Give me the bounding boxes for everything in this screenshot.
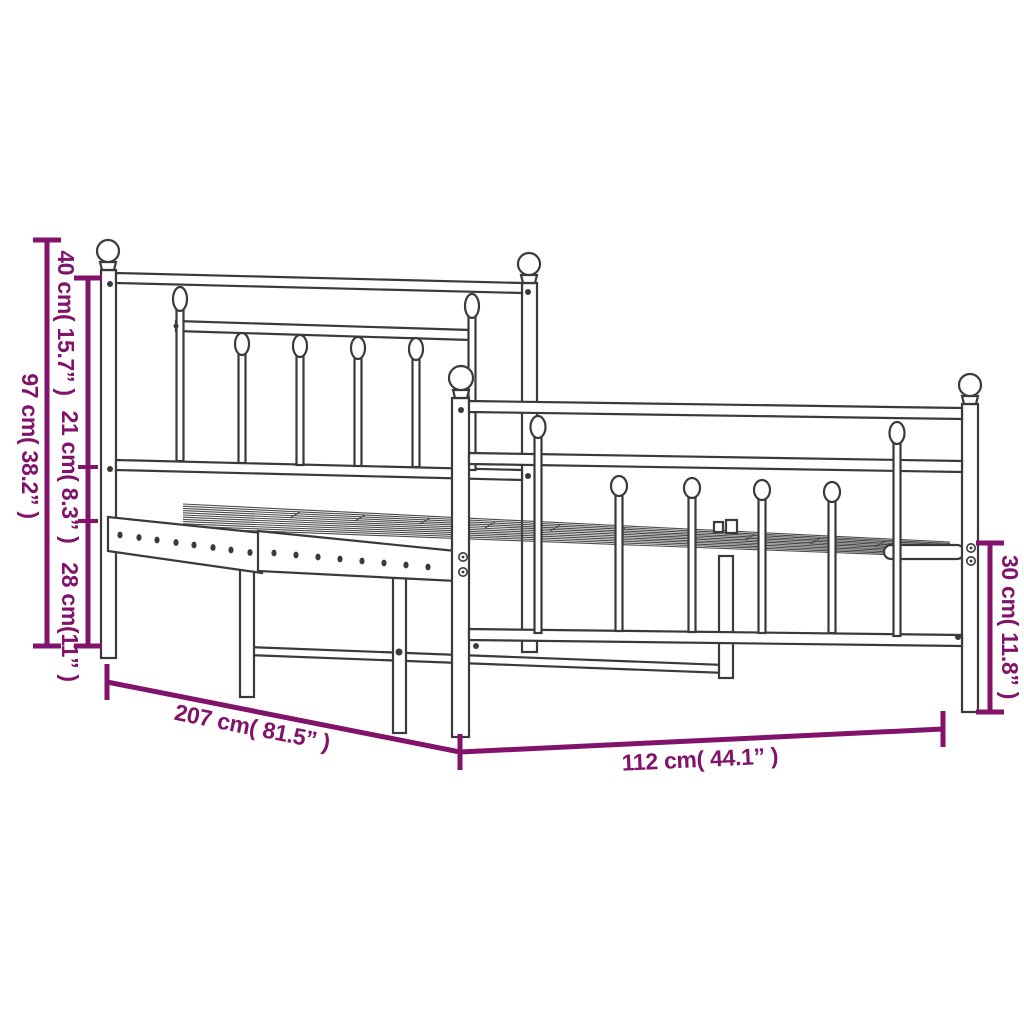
- headboard-ball-finial-right: [518, 253, 540, 275]
- slat-bracket: [726, 520, 737, 533]
- footboard-spindle: [759, 499, 766, 633]
- footboard-ball-finial-right: [959, 374, 981, 396]
- footboard-spindle: [689, 497, 696, 632]
- headboard-spindle: [239, 354, 246, 463]
- dim-label-headboard-middle: 21 cm( 8.3” ): [57, 411, 83, 544]
- footboard-egg-finial: [531, 416, 546, 438]
- leg-bolt: [396, 649, 403, 656]
- footboard-spindle: [829, 501, 836, 633]
- footboard-egg-finial: [754, 480, 770, 500]
- footboard-tall-spindle-left: [535, 437, 542, 633]
- headboard-egg-finial: [235, 333, 249, 355]
- dim-label-headboard-lower: 28 cm(11” ): [57, 562, 83, 681]
- support-leg: [240, 560, 254, 697]
- headboard-egg-finial: [293, 335, 307, 357]
- footboard-ball-finial-left: [449, 366, 473, 390]
- footboard-spindle: [616, 495, 623, 631]
- dim-label-overall-height: 97 cm( 38.2” ): [17, 373, 43, 518]
- diagram-canvas: 97 cm( 38.2” ) 40 cm( 15.7” ) 21 cm( 8.3…: [0, 0, 1024, 1024]
- footboard-tall-spindle-right: [894, 443, 901, 636]
- finial-collar: [962, 396, 978, 404]
- headboard-tall-spindle-left: [177, 310, 184, 461]
- headboard-spindle: [297, 356, 304, 465]
- headboard-ball-finial-left: [97, 240, 119, 262]
- background: [0, 0, 1024, 1024]
- finial-collar: [521, 275, 537, 283]
- headboard-egg-finial: [409, 338, 423, 360]
- slat-bracket: [714, 522, 723, 532]
- headboard-spindle: [413, 359, 420, 467]
- footboard-egg-finial: [611, 476, 627, 496]
- footboard-egg-finial: [824, 482, 840, 502]
- footboard-egg-finial: [684, 478, 700, 498]
- finial-collar: [100, 262, 116, 270]
- footboard-center-leg: [719, 556, 733, 678]
- headboard-egg-finial: [465, 294, 479, 318]
- bed-dimension-diagram: 97 cm( 38.2” ) 40 cm( 15.7” ) 21 cm( 8.3…: [0, 0, 1024, 1024]
- headboard-left-post: [101, 270, 116, 658]
- dim-label-headboard-upper: 40 cm( 15.7” ): [53, 250, 79, 395]
- dim-label-footboard-height: 30 cm( 11.8” ): [997, 555, 1023, 699]
- headboard-egg-finial: [173, 287, 187, 311]
- footboard-egg-finial: [890, 422, 905, 444]
- headboard-spindle: [355, 358, 362, 466]
- headboard-egg-finial: [351, 337, 365, 359]
- footboard-left-post: [452, 398, 469, 737]
- finial-collar: [453, 390, 469, 398]
